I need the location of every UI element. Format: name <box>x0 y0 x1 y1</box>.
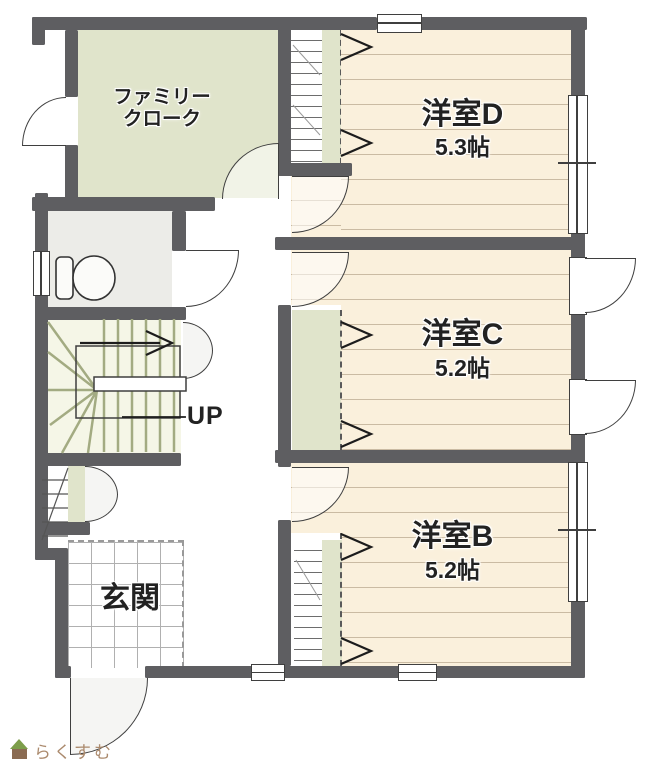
wall-stair-hall-stub <box>158 377 186 390</box>
family-cloak-label-line2: クローク <box>70 108 254 130</box>
logo: らくすむ <box>8 732 168 762</box>
room-d-area: 5.3帖 <box>365 134 560 160</box>
window-room-b-east <box>568 462 588 602</box>
wall-stairs-bottom <box>35 453 181 466</box>
wall-left-outer-mid <box>35 292 48 560</box>
room-b-label: 洋室B <box>355 520 550 555</box>
window-tick-room-d <box>558 162 596 164</box>
wall-family-cloak-bottom <box>32 197 215 211</box>
room-b-closet-hatch <box>294 540 322 666</box>
room-d-label: 洋室D <box>365 98 560 133</box>
wall-right-outer-4 <box>571 433 585 465</box>
window-room-d-north <box>377 14 422 33</box>
room-c-closet-door-line <box>340 310 342 450</box>
up-label: UP <box>187 402 235 431</box>
wall-room-d-c-divider <box>275 237 585 250</box>
wall-corridor-mid <box>278 305 291 467</box>
wall-bottom-3 <box>433 666 585 678</box>
room-c-closet-floor <box>292 310 341 450</box>
wall-bottom-1 <box>145 666 253 678</box>
wall-room-c-b-divider <box>275 450 585 463</box>
window-room-b-south <box>398 664 437 681</box>
wall-room-d-closet-left <box>278 27 291 165</box>
wall-toilet-bottom <box>35 307 186 320</box>
wall-right-outer-2 <box>571 230 585 258</box>
room-b-closet-floor <box>322 540 342 666</box>
room-c-area: 5.2帖 <box>365 355 560 381</box>
wall-left-outer-lower <box>55 558 68 678</box>
room-b-closet-door-line <box>340 533 342 666</box>
floor-plan: ファミリー クローク 洋室D 5.3帖 洋室C 5.2帖 洋室B 5.2帖 玄関… <box>0 0 652 764</box>
wall-toilet-right <box>172 211 186 251</box>
family-cloak-label: ファミリー クローク <box>70 86 254 131</box>
wall-bottom-2 <box>283 666 400 678</box>
room-d-closet-floor <box>322 30 342 164</box>
door-arc-stair-hall-lower <box>183 350 213 379</box>
wall-bottom-0 <box>55 666 71 678</box>
window-room-d-east <box>568 95 588 234</box>
family-cloak-label-line1: ファミリー <box>70 86 254 108</box>
room-c-label: 洋室C <box>365 318 560 353</box>
entrance-label: 玄関 <box>72 582 188 617</box>
understair-closet-floor <box>68 466 85 522</box>
window-entrance-south <box>251 664 285 681</box>
door-arc-understair-closet-upper <box>85 466 118 495</box>
door-arc-stair-hall-upper <box>183 322 213 351</box>
toilet-floor <box>48 211 172 308</box>
wall-top-b <box>420 17 587 30</box>
wall-family-cloak-left-lower <box>65 145 78 203</box>
casement-window-arc-room-c-1 <box>585 258 636 313</box>
window-tick-room-b <box>558 529 596 531</box>
room-d-closet-hatch <box>291 30 322 164</box>
logo-house-body-icon <box>12 749 27 759</box>
logo-text: らくすむ <box>34 738 114 763</box>
door-arc-understair-closet-lower <box>85 494 118 522</box>
room-b-area: 5.2帖 <box>355 557 550 583</box>
door-arc-family-cloak-exterior <box>22 97 66 146</box>
wall-understair-stub <box>35 522 90 535</box>
casement-window-arc-room-c-2 <box>585 380 636 434</box>
wall-right-outer-1 <box>571 17 585 97</box>
logo-house-roof-icon <box>10 739 28 749</box>
wall-top-a <box>32 17 377 30</box>
wall-left-outer-upper <box>35 193 48 253</box>
window-toilet-west <box>33 251 50 296</box>
wall-room-d-closet-bottom <box>278 163 352 176</box>
wall-corridor-lower <box>278 520 291 666</box>
wall-right-outer-3 <box>571 312 585 380</box>
door-arc-toilet <box>186 250 239 307</box>
